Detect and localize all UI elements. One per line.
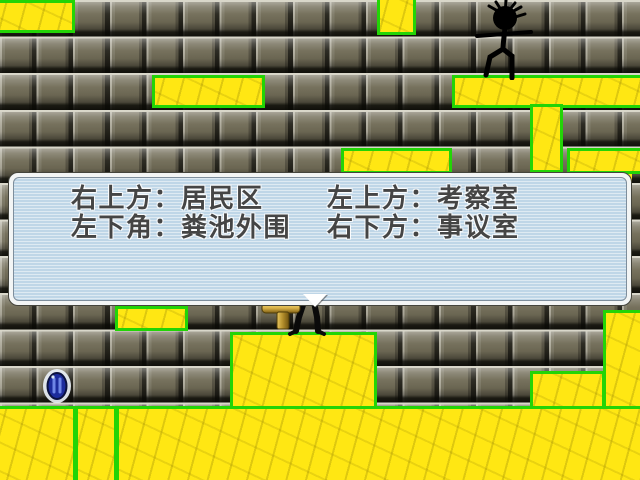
gem-body <box>48 373 67 399</box>
platform-right-shelf <box>567 148 640 174</box>
platform-below-dialog-small <box>115 306 188 331</box>
platform-right-lower-column <box>603 310 640 409</box>
platform-bottom-wide <box>116 406 640 480</box>
dialog-more-indicator[interactable] <box>303 294 327 307</box>
platform-upper-mid <box>152 75 265 108</box>
platform-mid-big <box>230 332 377 409</box>
dialog-inner: 右上方：居民区 左上方：考察室 左下角：粪池外围 右下方：事议室 <box>13 177 627 301</box>
hero-stick-figure-sprite <box>470 0 542 80</box>
dialog-line1-left: 右上方：居民区 <box>71 185 264 213</box>
platform-mid-shelf <box>341 148 452 174</box>
platform-top-left <box>0 0 75 33</box>
platform-bottom-left <box>0 406 76 480</box>
dialog-line2-right: 右下方：事议室 <box>327 214 520 242</box>
dialog-line2-left: 左下角：粪池外围 <box>71 214 291 242</box>
blue-gem-sprite <box>40 366 74 406</box>
game-viewport: 右上方：居民区 左上方：考察室 左下角：粪池外围 右下方：事议室 <box>0 0 640 480</box>
platform-bottom-mid-strip <box>75 406 117 480</box>
gem-highlight <box>51 375 54 378</box>
platform-step-right <box>530 371 605 409</box>
dialog-box[interactable]: 右上方：居民区 左上方：考察室 左下角：粪池外围 右下方：事议室 <box>8 172 632 306</box>
platform-top-small <box>377 0 416 35</box>
hero-body-limbs <box>477 28 531 78</box>
hammer-handle <box>277 312 289 329</box>
dialog-line1-right: 左上方：考察室 <box>327 185 520 213</box>
platform-right-column <box>530 104 563 173</box>
